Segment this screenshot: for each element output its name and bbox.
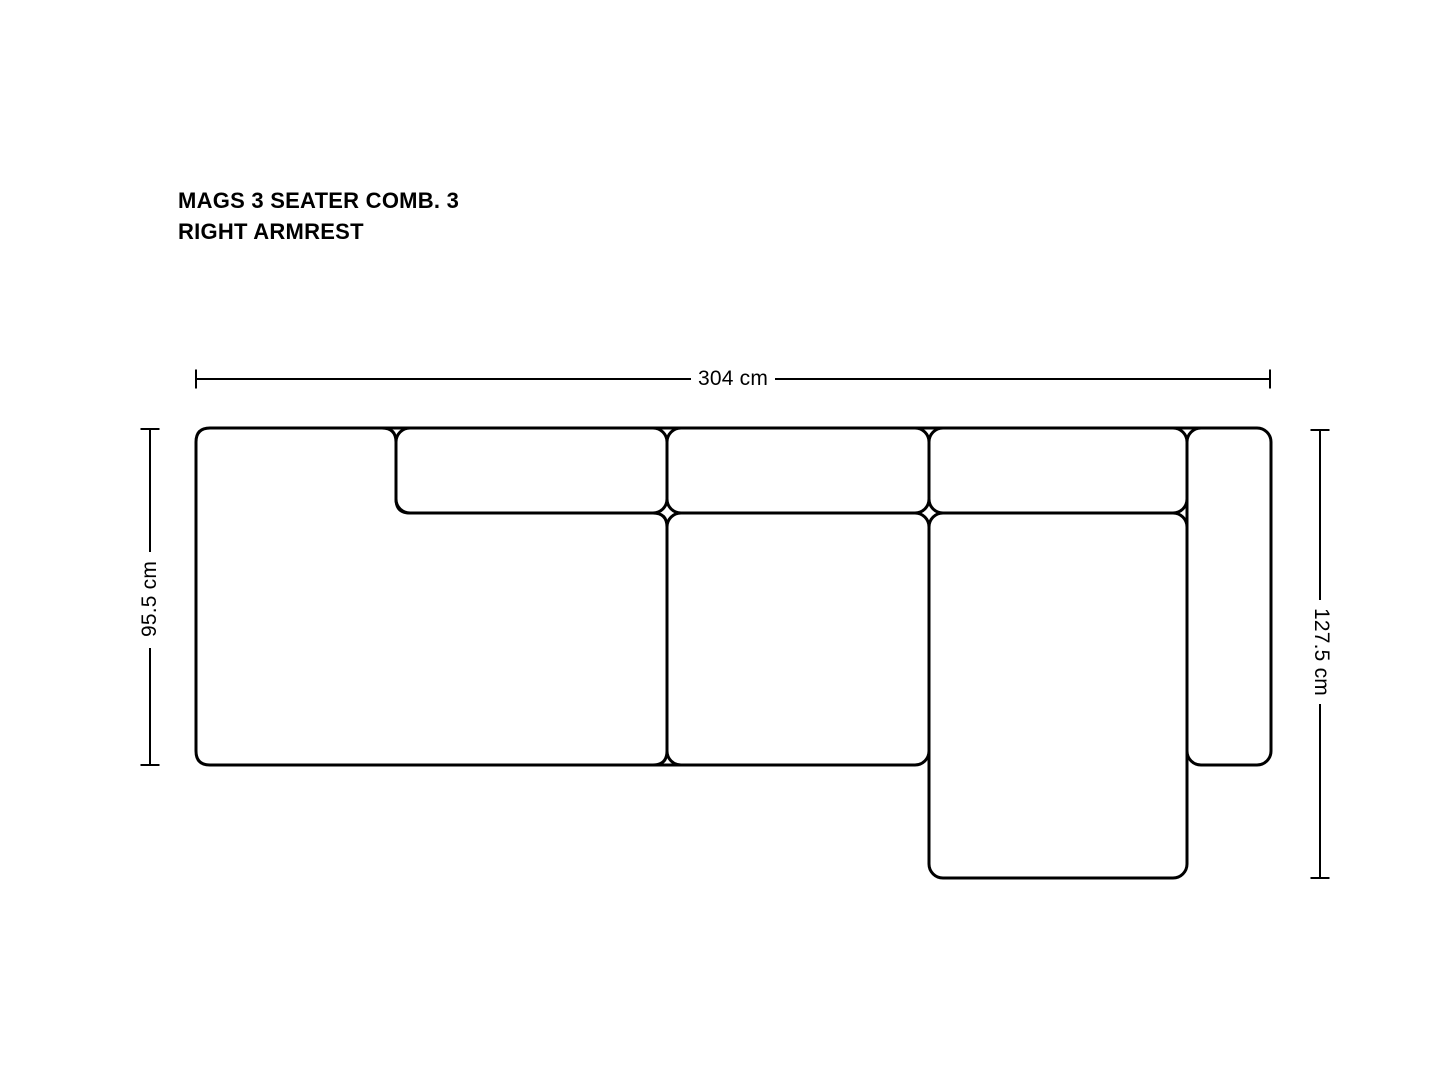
sofa-outline — [196, 428, 1271, 878]
chaise-backrest-cushion — [929, 428, 1187, 513]
dimension-label-left-depth: 95.5 cm — [138, 561, 162, 637]
middle-seat-cushion — [667, 513, 929, 765]
middle-backrest-cushion — [667, 428, 929, 513]
dimension-label-overall-width: 304 cm — [698, 367, 768, 391]
dimension-label-right-depth: 127.5 cm — [1309, 608, 1333, 696]
right-armrest — [1187, 428, 1271, 765]
chaise-longue-seat — [929, 513, 1187, 878]
diagram-canvas: MAGS 3 SEATER COMB. 3 RIGHT ARMREST — [0, 0, 1445, 1087]
sofa-technical-drawing — [0, 0, 1445, 1087]
left-backrest-cushion — [396, 428, 667, 513]
